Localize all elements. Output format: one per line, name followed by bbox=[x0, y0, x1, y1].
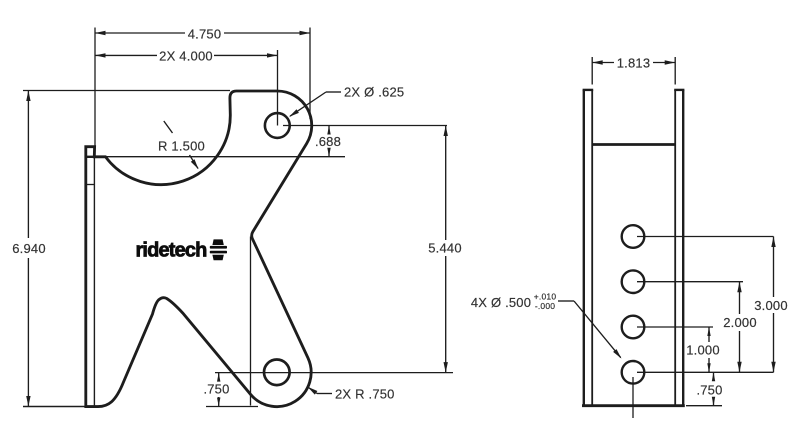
svg-text:4.750: 4.750 bbox=[188, 26, 222, 41]
svg-text:ridetech: ridetech bbox=[136, 239, 207, 261]
svg-text:2X R .750: 2X R .750 bbox=[335, 386, 395, 401]
svg-text:2.000: 2.000 bbox=[723, 315, 757, 330]
svg-text:2X Ø .625: 2X Ø .625 bbox=[344, 85, 404, 100]
svg-text:.750: .750 bbox=[696, 382, 722, 397]
svg-text:4X Ø .500: 4X Ø .500 bbox=[471, 295, 531, 310]
svg-text:5.440: 5.440 bbox=[428, 240, 462, 255]
svg-text:.750: .750 bbox=[203, 381, 229, 396]
svg-text:.688: .688 bbox=[315, 134, 341, 149]
svg-text:6.940: 6.940 bbox=[12, 241, 46, 256]
svg-text:R 1.500: R 1.500 bbox=[158, 139, 205, 154]
svg-text:1.000: 1.000 bbox=[686, 343, 720, 358]
svg-text:3.000: 3.000 bbox=[754, 298, 788, 313]
svg-text:1.813: 1.813 bbox=[617, 56, 651, 71]
svg-text:-.000: -.000 bbox=[535, 301, 555, 311]
svg-text:2X 4.000: 2X 4.000 bbox=[159, 49, 213, 64]
